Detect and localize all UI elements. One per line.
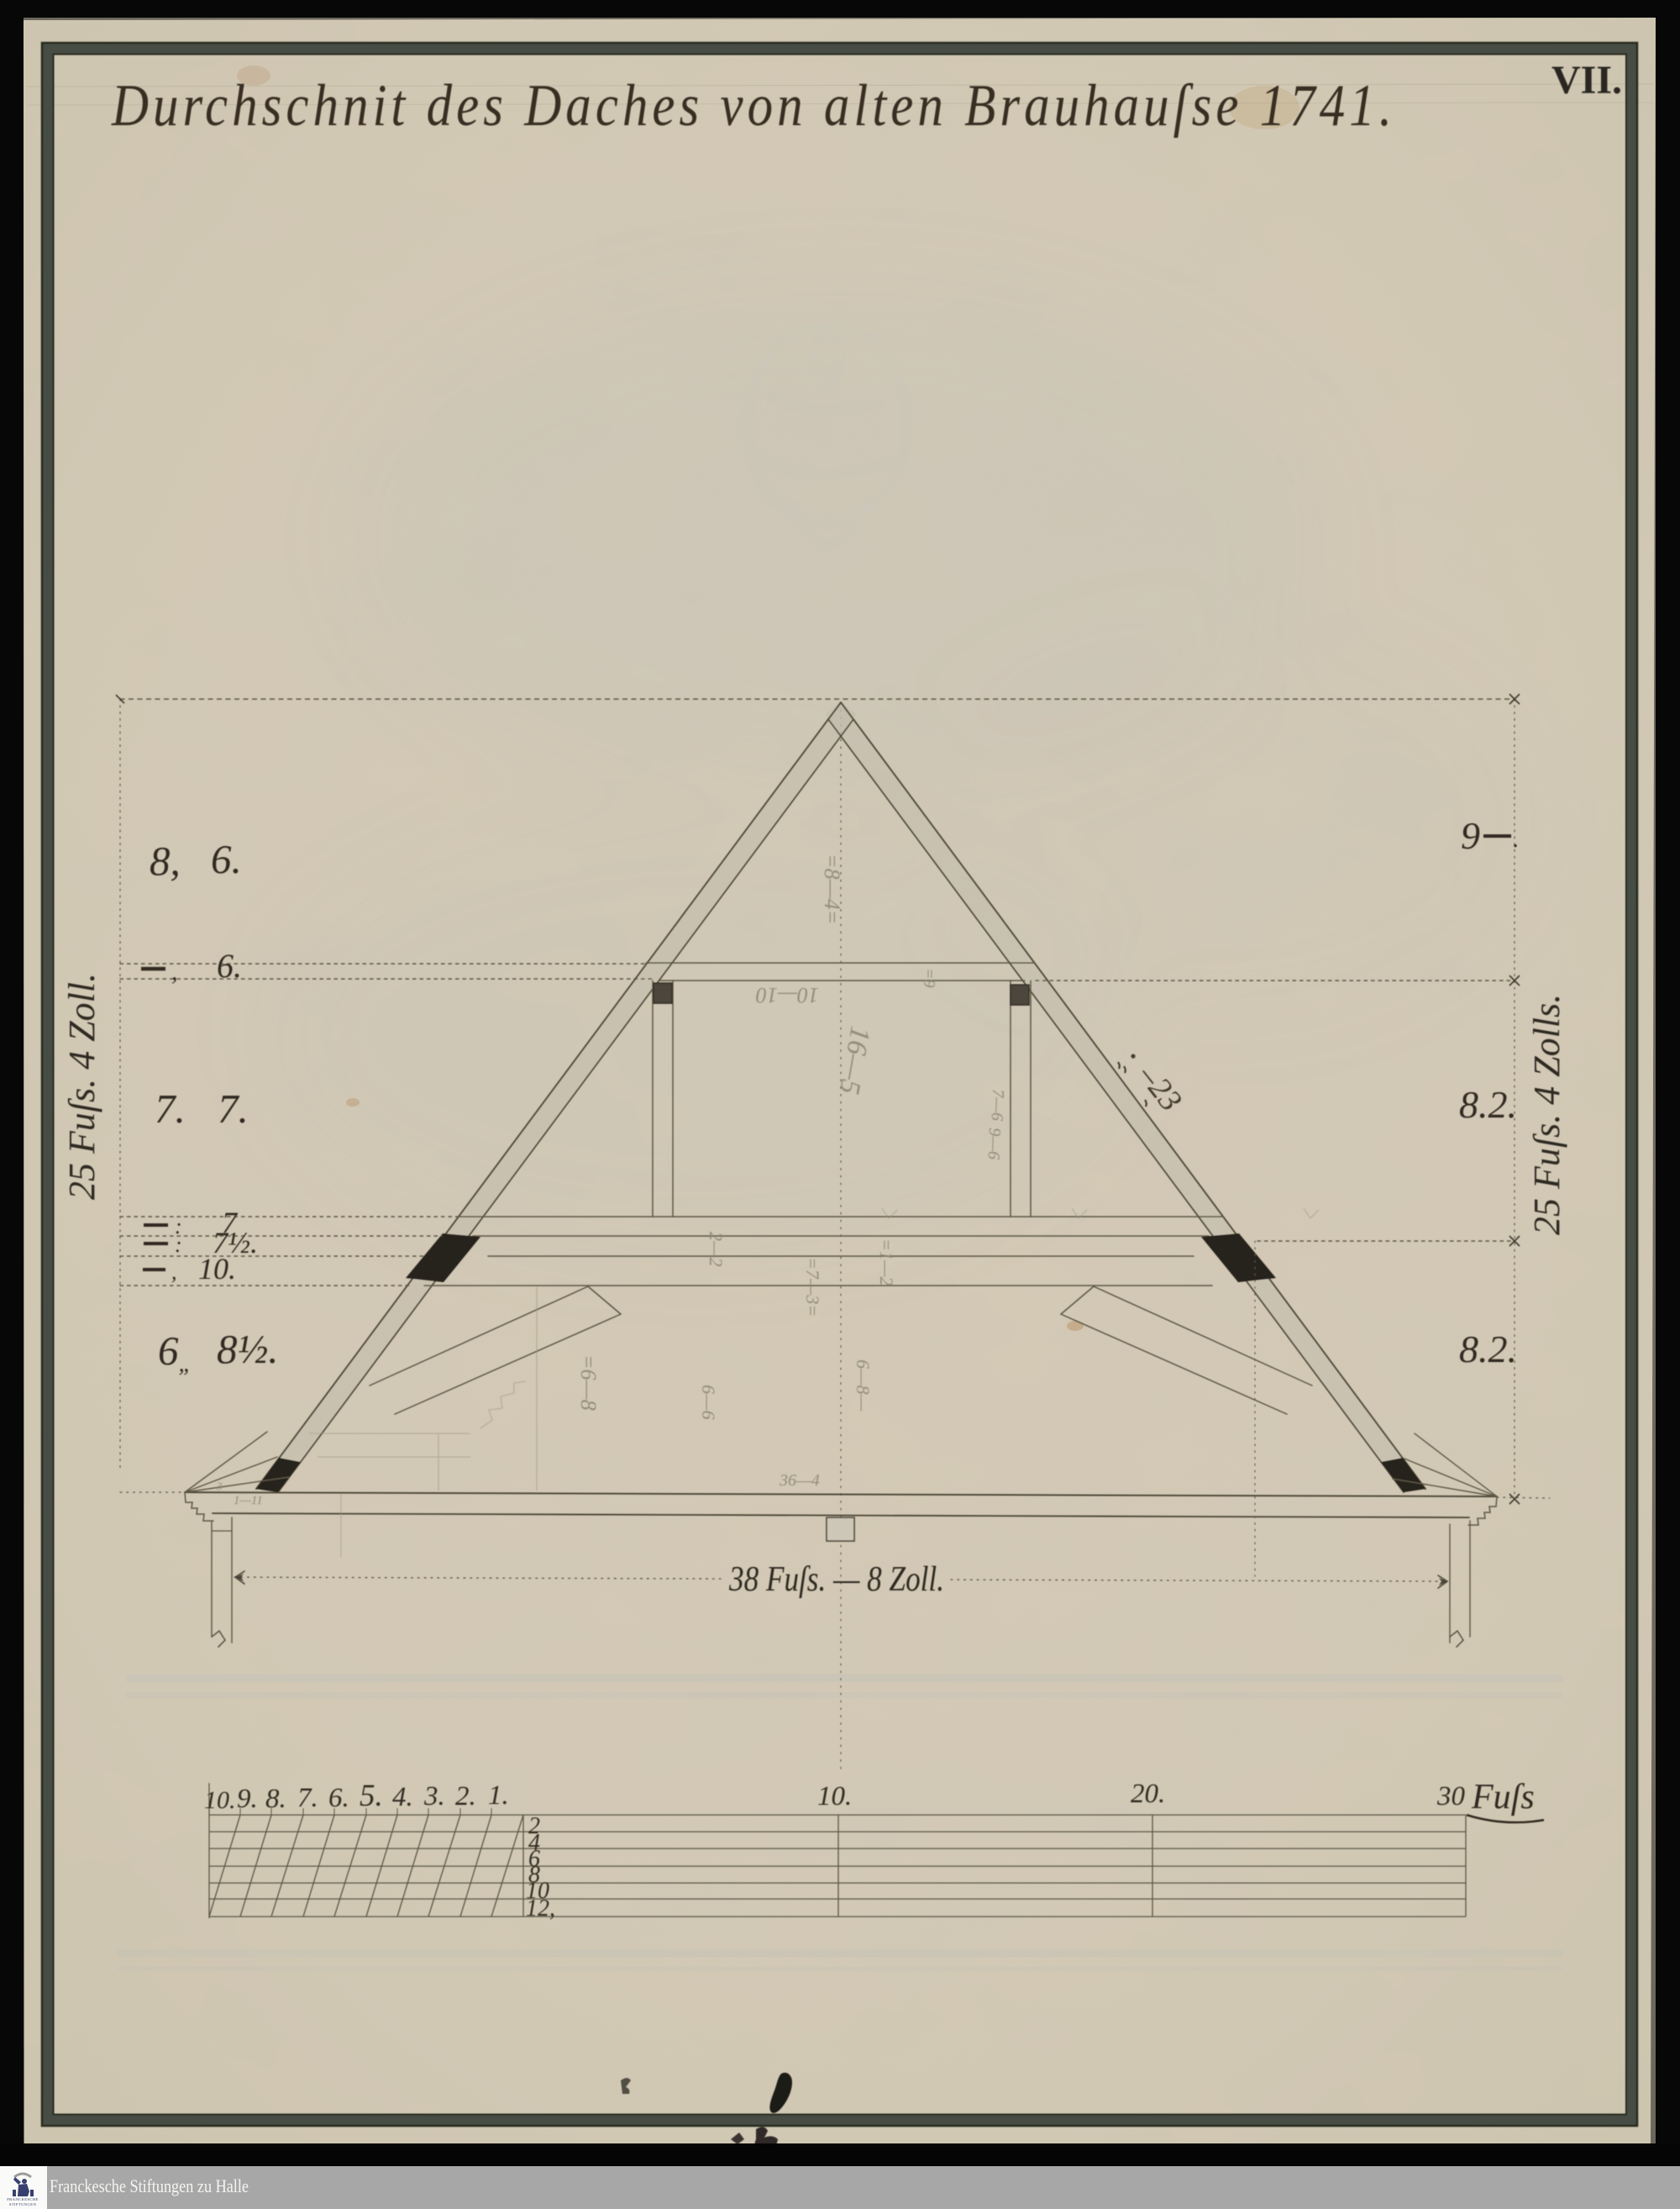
svg-text::: : [175,1233,182,1257]
svg-text:.: . [1513,825,1520,853]
svg-text:STIFTUNGEN: STIFTUNGEN [9,2202,37,2206]
svg-text:20.: 20. [1131,1779,1165,1809]
svg-text:2—2: 2—2 [706,1232,727,1267]
svg-text:6—8—: 6—8— [853,1360,874,1412]
svg-text:Franckesche Stiftungen zu Hall: Franckesche Stiftungen zu Halle [50,2175,249,2196]
svg-text:25 Fuſs. 4 Zolls.: 25 Fuſs. 4 Zolls. [1526,994,1567,1235]
svg-text:5.: 5. [360,1779,383,1813]
svg-text:25 Fuſs. 4 Zoll.: 25 Fuſs. 4 Zoll. [61,973,102,1200]
svg-text:7.: 7. [155,1086,186,1132]
svg-text:7—6: 7—6 [988,1089,1007,1122]
svg-text:Fuſs: Fuſs [1471,1778,1535,1817]
svg-text:=7—3=: =7—3= [802,1257,823,1317]
svg-text:1—11: 1—11 [234,1494,263,1507]
svg-text:30: 30 [1436,1781,1466,1812]
svg-text:36—4: 36—4 [779,1471,820,1490]
svg-text:10.: 10. [817,1781,852,1812]
svg-text:6.: 6. [328,1783,349,1813]
svg-text:4.: 4. [392,1782,413,1812]
svg-text:=6—8: =6—8 [576,1354,601,1411]
svg-text:=9: =9 [920,968,938,988]
svg-text:1.: 1. [488,1780,509,1811]
svg-text:8.2.: 8.2. [1459,1083,1517,1126]
svg-text:8.2.: 8.2. [1459,1328,1517,1370]
svg-text:VII.: VII. [1551,58,1622,103]
svg-text:,: , [171,958,178,986]
svg-text:=8—4=: =8—4= [820,854,844,924]
svg-text:8,: 8, [150,838,181,884]
svg-text:9.: 9. [237,1784,258,1814]
svg-text:6.: 6. [217,947,242,985]
svg-text:3: 3 [216,1480,223,1492]
svg-text:3.: 3. [423,1781,445,1812]
svg-text:7.: 7. [218,1086,249,1132]
svg-text:10—10: 10—10 [756,983,819,1007]
svg-text:9: 9 [1461,814,1480,857]
svg-text:2.: 2. [455,1781,476,1812]
svg-text:8.: 8. [265,1784,286,1814]
svg-text:10.: 10. [198,1252,236,1286]
svg-text:9—6: 9—6 [984,1128,1004,1160]
svg-text:38 Fuſs. — 8 Zoll.: 38 Fuſs. — 8 Zoll. [728,1560,944,1599]
svg-text:6—6: 6—6 [698,1385,719,1420]
svg-text:Durchschnit des Daches von alt: Durchschnit des Daches von alten Brauhau… [111,73,1392,139]
svg-text:6.: 6. [211,836,242,882]
svg-text:7.: 7. [297,1783,318,1813]
svg-text:FRANCKESCHE: FRANCKESCHE [7,2197,39,2201]
svg-text:,: , [171,1260,177,1284]
svg-text:10.: 10. [204,1786,236,1814]
svg-text:12,: 12, [526,1896,555,1922]
svg-text:8½.: 8½. [217,1326,279,1372]
svg-text:=1—2: =1—2 [876,1239,897,1286]
